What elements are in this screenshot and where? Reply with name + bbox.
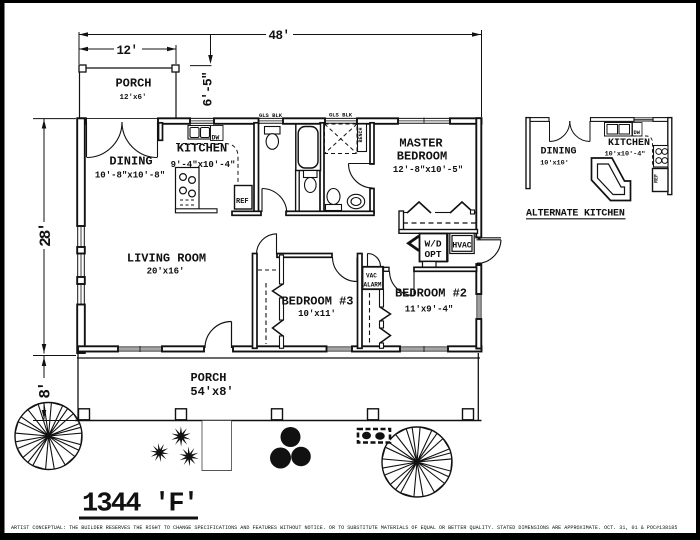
svg-text:VAC: VAC — [366, 273, 377, 280]
svg-text:GLS BLK: GLS BLK — [259, 112, 283, 119]
svg-text:OPT: OPT — [424, 249, 441, 260]
svg-text:54'x8': 54'x8' — [190, 385, 233, 399]
svg-text:6'-5": 6'-5" — [201, 72, 216, 106]
svg-text:BENCH: BENCH — [358, 127, 364, 142]
svg-text:MASTER: MASTER — [399, 137, 443, 151]
svg-text:12': 12' — [116, 44, 137, 58]
svg-text:10'x10': 10'x10' — [540, 160, 569, 168]
svg-text:PORCH: PORCH — [115, 77, 151, 91]
svg-text:DINING: DINING — [109, 155, 152, 169]
svg-text:12'x6': 12'x6' — [119, 94, 146, 102]
svg-text:BEDROOM: BEDROOM — [397, 150, 447, 164]
svg-text:BEDROOM #3: BEDROOM #3 — [281, 295, 353, 309]
svg-text:8': 8' — [37, 383, 55, 398]
svg-text:11'x9'-4": 11'x9'-4" — [405, 305, 454, 315]
svg-text:KITCHEN: KITCHEN — [608, 138, 650, 149]
svg-text:LIVING ROOM: LIVING ROOM — [127, 252, 206, 266]
svg-text:10'x11': 10'x11' — [298, 309, 336, 319]
svg-text:28': 28' — [37, 224, 55, 247]
svg-text:1344 'F': 1344 'F' — [82, 490, 197, 520]
svg-text:GLS BLK: GLS BLK — [329, 112, 353, 119]
svg-text:48': 48' — [268, 29, 289, 43]
svg-text:DW: DW — [634, 129, 641, 136]
svg-text:ALARM: ALARM — [364, 282, 382, 289]
svg-text:10'-8"x10'-8": 10'-8"x10'-8" — [95, 171, 165, 181]
svg-text:ALTERNATE KITCHEN: ALTERNATE KITCHEN — [526, 209, 625, 220]
svg-text:12'-8"x10'-5": 12'-8"x10'-5" — [393, 165, 463, 175]
svg-text:KITCHEN: KITCHEN — [177, 142, 227, 156]
svg-text:DINING: DINING — [540, 147, 576, 158]
svg-text:W/D: W/D — [424, 239, 441, 250]
svg-text:HVAC: HVAC — [452, 242, 471, 251]
svg-text:REF: REF — [236, 198, 249, 206]
svg-text:20'x16': 20'x16' — [147, 267, 185, 277]
svg-text:DW: DW — [212, 135, 220, 142]
svg-text:10'x10'-4": 10'x10'-4" — [605, 151, 646, 159]
svg-text:ARTIST CONCEPTUAL: THE BUILDER: ARTIST CONCEPTUAL: THE BUILDER RESERVES … — [11, 525, 677, 531]
svg-text:BEDROOM #2: BEDROOM #2 — [395, 287, 467, 301]
svg-text:PORCH: PORCH — [190, 371, 226, 385]
svg-text:9'-4"x10'-4": 9'-4"x10'-4" — [171, 160, 236, 170]
svg-text:REF: REF — [654, 174, 660, 183]
